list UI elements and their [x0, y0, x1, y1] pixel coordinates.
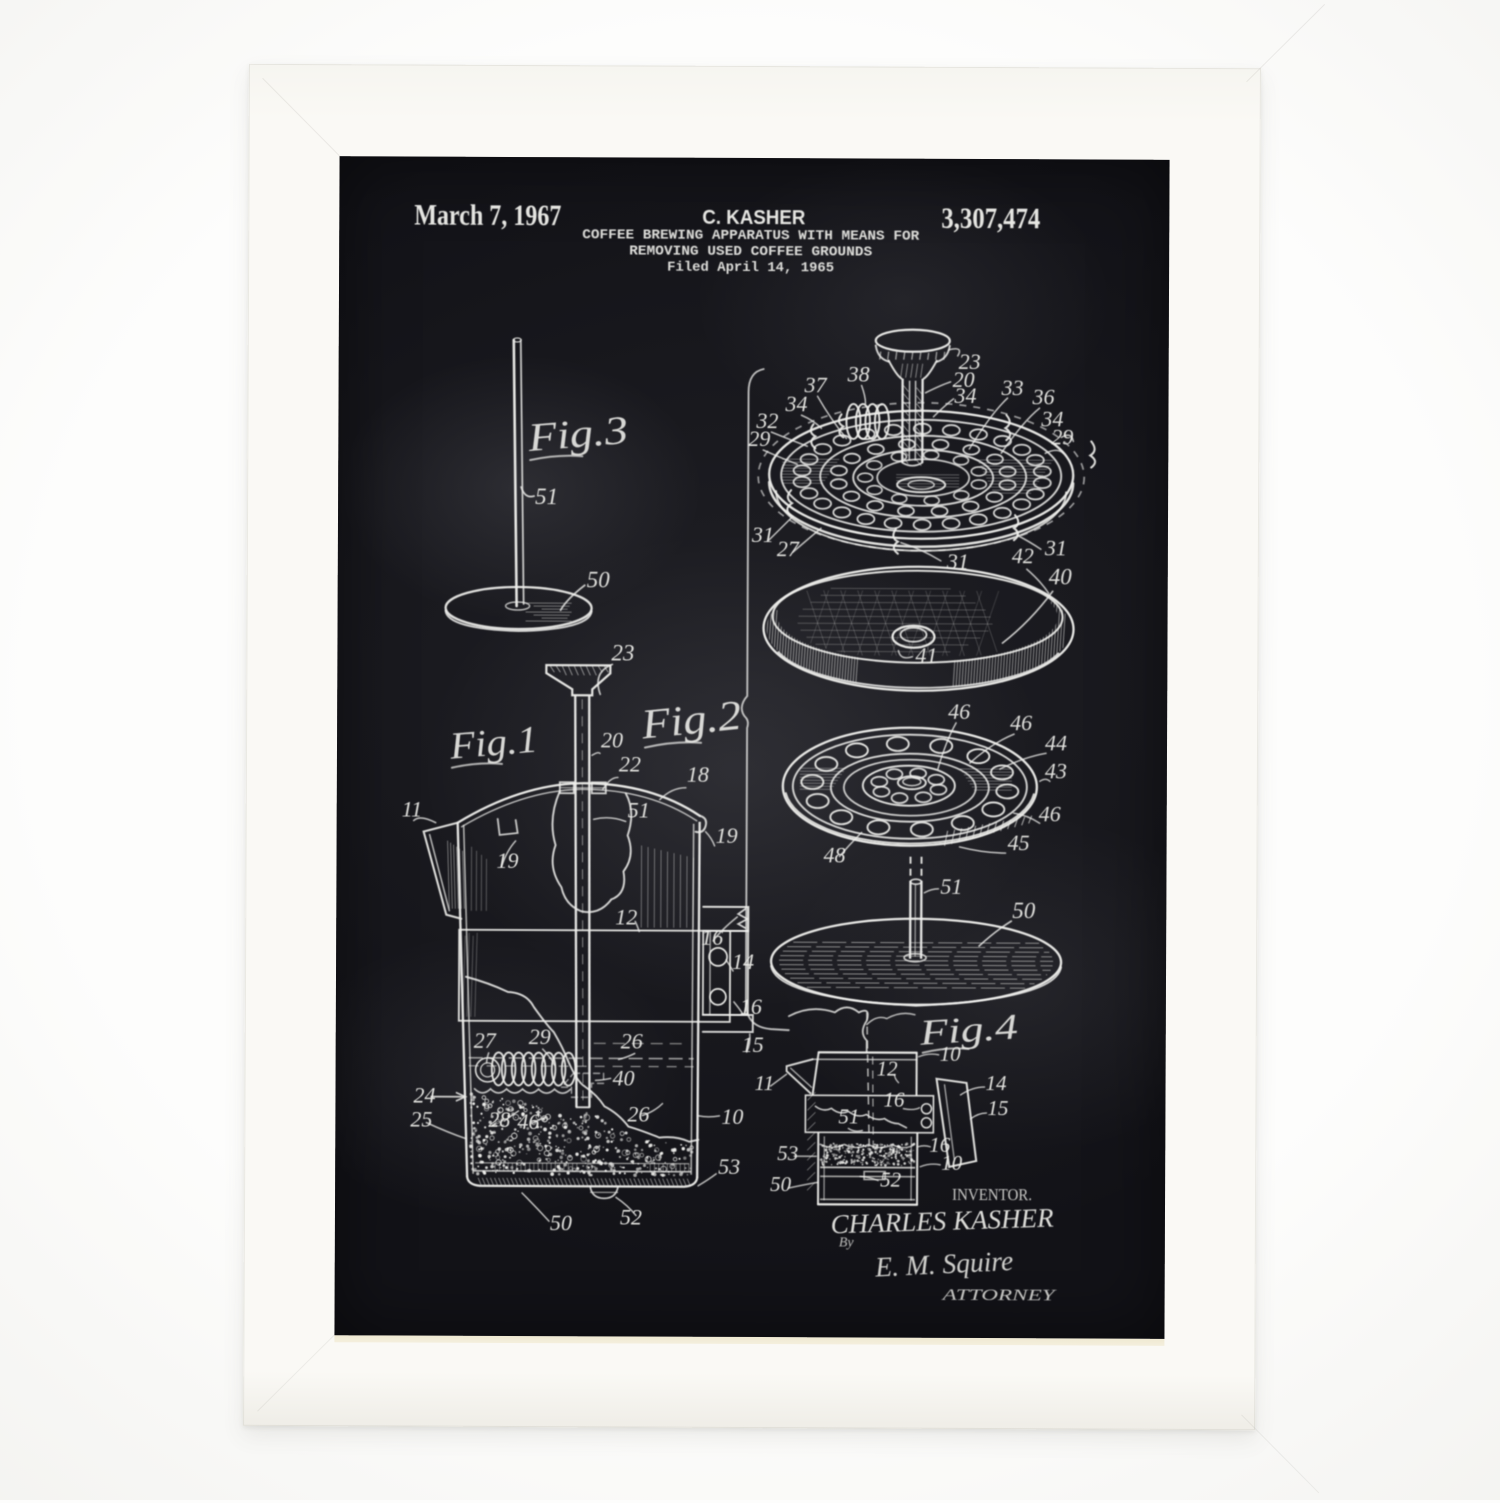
svg-text:41: 41	[915, 643, 937, 668]
svg-text:Fig.1: Fig.1	[447, 719, 539, 768]
svg-text:ATTORNEY: ATTORNEY	[941, 1287, 1058, 1305]
svg-text:46: 46	[1010, 710, 1032, 735]
svg-text:Filed April 14, 1965: Filed April 14, 1965	[667, 260, 834, 277]
svg-text:52: 52	[880, 1168, 902, 1192]
svg-text:Fig.4: Fig.4	[917, 1006, 1019, 1052]
svg-text:42: 42	[1012, 543, 1034, 568]
svg-text:27: 27	[474, 1028, 497, 1053]
svg-text:COFFEE BREWING APPARATUS WITH: COFFEE BREWING APPARATUS WITH MEANS FOR	[582, 227, 920, 244]
svg-text:45: 45	[1008, 830, 1030, 855]
svg-text:20: 20	[601, 727, 623, 752]
svg-text:50: 50	[550, 1210, 572, 1235]
svg-text:C. KASHER: C. KASHER	[702, 207, 806, 229]
svg-text:25: 25	[410, 1107, 432, 1132]
svg-text:34: 34	[953, 383, 976, 408]
svg-text:10: 10	[941, 1151, 963, 1175]
svg-text:March 7, 1967: March 7, 1967	[414, 199, 561, 233]
svg-text:33: 33	[1001, 375, 1024, 400]
svg-text:15: 15	[987, 1096, 1008, 1120]
svg-text:CHARLES KASHER: CHARLES KASHER	[830, 1203, 1054, 1240]
svg-text:51: 51	[535, 484, 558, 509]
svg-text:50: 50	[1012, 898, 1036, 923]
svg-text:53: 53	[718, 1154, 740, 1179]
svg-text:29: 29	[748, 426, 770, 451]
svg-text:Fig.2: Fig.2	[638, 693, 743, 749]
svg-text:24: 24	[413, 1083, 435, 1108]
svg-text:38: 38	[847, 361, 870, 386]
svg-text:50: 50	[770, 1172, 792, 1196]
svg-text:3,307,474: 3,307,474	[941, 202, 1040, 235]
svg-text:48: 48	[823, 842, 845, 867]
svg-text:50: 50	[587, 567, 611, 592]
svg-text:16: 16	[701, 925, 723, 950]
svg-text:16: 16	[740, 994, 762, 1019]
svg-text:14: 14	[985, 1071, 1007, 1095]
svg-text:52: 52	[620, 1204, 642, 1229]
svg-text:44: 44	[1045, 730, 1067, 755]
svg-text:29: 29	[529, 1024, 551, 1049]
svg-text:22: 22	[619, 751, 641, 776]
svg-text:26: 26	[621, 1028, 643, 1053]
svg-text:11: 11	[754, 1071, 774, 1095]
svg-text:19: 19	[716, 823, 738, 848]
svg-text:12: 12	[615, 904, 637, 929]
svg-text:15: 15	[742, 1032, 764, 1057]
svg-text:31: 31	[751, 522, 774, 547]
svg-text:Fig.3: Fig.3	[525, 407, 630, 460]
svg-text:REMOVING USED COFFEE GROUNDS: REMOVING USED COFFEE GROUNDS	[629, 243, 873, 260]
svg-text:23: 23	[611, 640, 634, 665]
svg-text:34: 34	[784, 391, 807, 416]
svg-text:40: 40	[1049, 564, 1073, 589]
svg-text:E. M. Squire: E. M. Squire	[874, 1246, 1014, 1284]
svg-text:51: 51	[838, 1104, 859, 1128]
svg-text:INVENTOR.: INVENTOR.	[952, 1185, 1032, 1204]
svg-text:29: 29	[1051, 424, 1073, 449]
svg-text:31: 31	[1044, 535, 1067, 560]
svg-text:18: 18	[687, 762, 709, 787]
svg-text:14: 14	[732, 949, 754, 974]
svg-text:53: 53	[777, 1141, 798, 1165]
svg-text:46: 46	[948, 699, 970, 724]
svg-text:10: 10	[721, 1104, 743, 1129]
svg-text:51: 51	[628, 797, 650, 822]
svg-text:40: 40	[613, 1065, 635, 1090]
svg-text:By: By	[839, 1235, 855, 1250]
svg-text:16: 16	[883, 1088, 905, 1112]
svg-text:10: 10	[940, 1042, 962, 1066]
svg-text:51: 51	[940, 874, 962, 899]
svg-text:46: 46	[1039, 801, 1061, 826]
